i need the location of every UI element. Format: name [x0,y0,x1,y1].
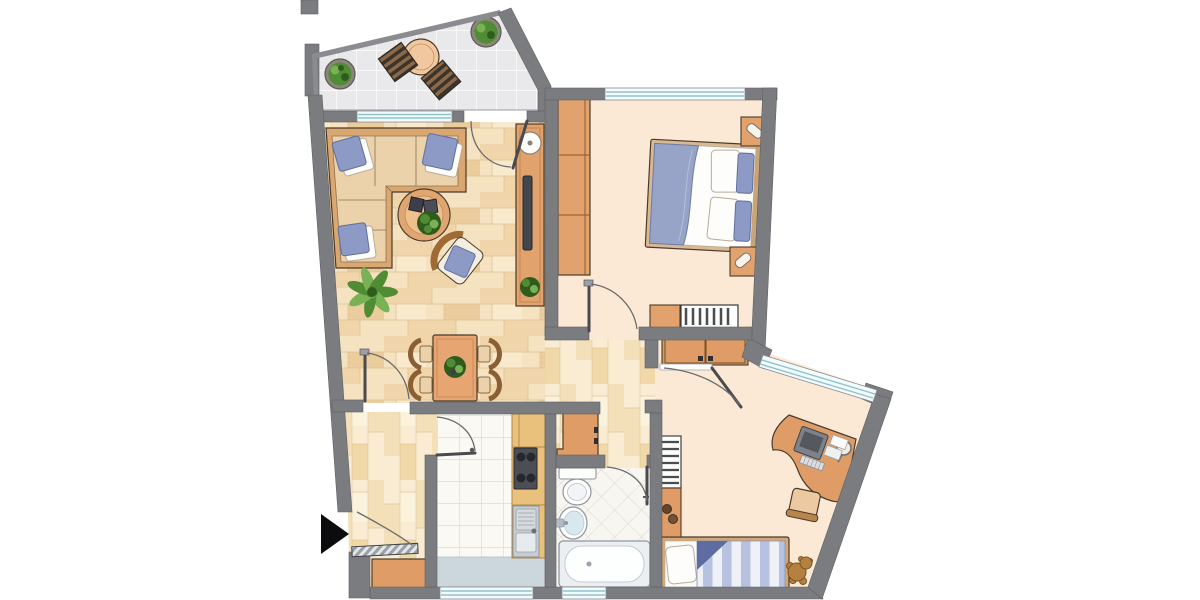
floor-plan-svg [0,0,1200,600]
wall-segment [639,327,752,340]
wall-segment [425,455,437,587]
sofa-pillow [421,133,464,178]
wall-segment [332,400,363,412]
kitchen-mat [437,557,545,587]
storage-closet [557,410,598,462]
bed-pillow [736,153,754,194]
kitchen-sink [513,506,539,557]
corridor-floor [545,330,658,468]
potted-plant [325,59,355,89]
bathtub [559,541,650,587]
double-bed [645,139,761,253]
sideboard-plant [520,277,540,297]
kids-pillow [665,545,697,585]
coffee-table-plant [417,211,441,235]
wall-segment [545,327,589,340]
toy-shelf [660,488,681,537]
sofa-pillow [338,222,377,262]
bedroom-wardrobe [558,98,590,275]
wall-segment [452,111,464,122]
sideboard [516,124,544,306]
bed-pillow [711,150,739,192]
door-leaf [437,453,475,455]
potted-plant [471,17,501,47]
wall-segment [545,88,605,100]
nightstand [730,247,757,276]
door-threshold [660,364,712,370]
wall-segment [349,552,370,598]
kitchen [512,414,545,558]
bed-pillow [734,201,752,242]
wall-segment [650,413,662,587]
tv [523,176,532,250]
wall-segment [410,402,600,414]
window-living-room [357,111,452,122]
kitchen-counter [512,414,545,558]
stove [514,448,537,489]
window-bathroom [562,587,606,599]
kids-radiator [660,436,681,488]
single-bed [661,537,789,592]
wall-segment [545,414,556,587]
wall-segment [301,0,318,14]
bedroom-dresser [650,305,680,328]
window-kitchen [440,587,533,599]
window-bedroom [605,88,745,100]
coffee-table [398,189,450,241]
dining-centerpiece [444,356,466,378]
wall-segment [556,455,605,468]
floor-plan-page [0,0,1200,600]
wall-segment [645,400,662,413]
entrance-arrow [321,514,349,554]
bedroom-radiator [681,305,738,328]
wall-segment [545,95,558,335]
